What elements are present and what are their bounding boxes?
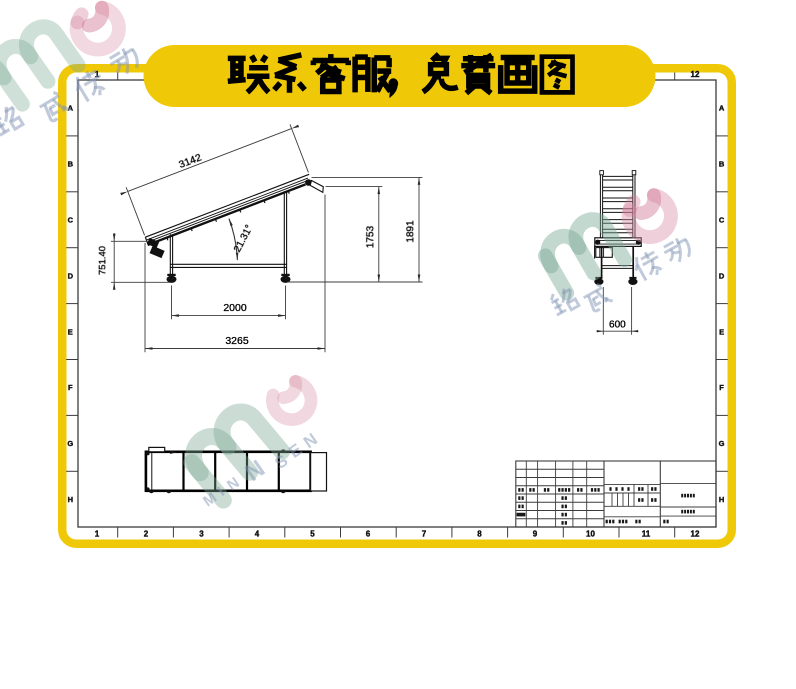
svg-text:8: 8 [477,530,482,539]
svg-text:3265: 3265 [225,335,249,347]
svg-text:C: C [719,216,725,225]
svg-text:1: 1 [95,530,100,539]
svg-text:E: E [68,327,73,336]
svg-text:21.31°: 21.31° [232,223,255,254]
svg-text:D: D [719,271,725,280]
svg-text:B: B [68,160,74,169]
svg-text:6: 6 [366,530,371,539]
svg-text:751.40: 751.40 [97,246,108,275]
svg-text:7: 7 [422,530,427,539]
svg-text:C: C [68,216,74,225]
svg-text:H: H [719,495,724,504]
svg-text:12: 12 [691,70,700,79]
svg-text:A: A [719,104,725,113]
svg-text:3142: 3142 [177,152,203,172]
svg-text:D: D [68,271,74,280]
svg-text:F: F [68,383,73,392]
svg-text:2000: 2000 [223,302,247,314]
svg-text:4: 4 [255,530,260,539]
svg-text:10: 10 [586,530,595,539]
svg-text:1891: 1891 [405,220,416,243]
svg-text:600: 600 [609,319,626,330]
svg-text:5: 5 [310,530,315,539]
svg-text:E: E [719,327,724,336]
svg-text:G: G [67,439,73,448]
svg-text:H: H [68,495,73,504]
svg-text:B: B [719,160,725,169]
svg-text:G: G [719,439,725,448]
svg-text:F: F [719,383,724,392]
svg-text:12: 12 [691,530,700,539]
svg-text:3: 3 [199,530,204,539]
svg-text:11: 11 [642,530,651,539]
svg-text:1753: 1753 [365,225,376,248]
svg-text:9: 9 [533,530,538,539]
svg-text:2: 2 [144,530,149,539]
svg-text:N: N [300,430,321,453]
